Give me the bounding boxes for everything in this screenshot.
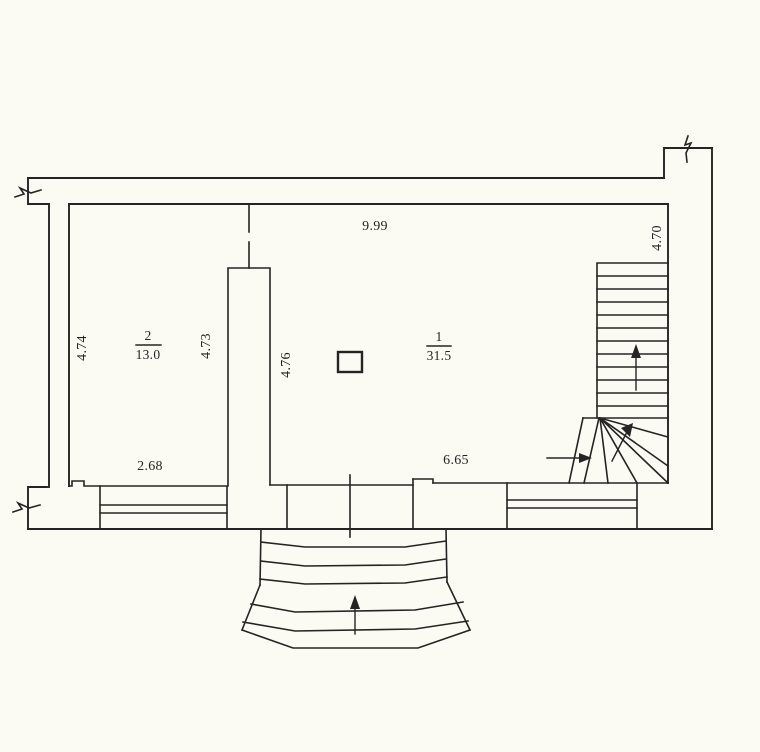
window-left — [100, 486, 227, 529]
stair-entry-arrow — [547, 453, 592, 463]
room-1-number: 1 — [435, 329, 442, 344]
window-right-frame — [507, 483, 637, 529]
dim-room1-left: 4.76 — [279, 352, 294, 378]
porch-side-left — [260, 529, 261, 585]
winder-left-boundary — [569, 418, 583, 483]
bottom-inner-left — [69, 481, 100, 486]
break-mark-bottom-left — [13, 503, 40, 512]
dim-left-height: 4.74 — [75, 335, 90, 361]
porch-steps — [242, 529, 470, 648]
window-right-glass-lines — [507, 500, 637, 508]
porch-bottom-edge — [242, 630, 470, 648]
dim-stair-side: 4.70 — [650, 225, 665, 251]
dim-bottom-left: 2.68 — [137, 459, 163, 474]
room-2-label: 2 13.0 — [136, 328, 161, 362]
door-right-pilaster — [413, 479, 433, 483]
window-left-frame — [100, 486, 227, 529]
porch-step-3 — [260, 577, 447, 584]
winder-stairs — [569, 418, 668, 483]
room-1-label: 1 31.5 — [427, 329, 452, 363]
dim-room2-right: 4.73 — [199, 333, 214, 359]
room-2-number: 2 — [144, 328, 151, 343]
dim-bottom-right: 6.65 — [443, 453, 469, 468]
exterior-walls — [28, 148, 712, 529]
room-1-area: 31.5 — [427, 348, 452, 363]
floor-plan-sheet: 9.99 4.70 4.74 4.73 4.76 2.68 6.65 2 13.… — [0, 0, 760, 752]
window-right — [507, 483, 637, 529]
winder-fan-lines — [600, 418, 668, 483]
stair-treads — [597, 276, 668, 406]
break-mark-top-right — [685, 136, 691, 162]
porch-step-1 — [261, 541, 446, 547]
staircase — [583, 263, 668, 418]
porch-up-arrow — [350, 595, 360, 634]
windows — [100, 483, 637, 529]
porch-side-right — [446, 529, 447, 582]
winder-first-tread — [584, 418, 599, 483]
dimension-labels: 9.99 4.70 4.74 4.73 4.76 2.68 6.65 — [75, 219, 665, 474]
column — [338, 352, 362, 372]
porch-step-2 — [261, 559, 446, 566]
window-left-glass-lines — [100, 505, 227, 513]
top-right-notch — [664, 148, 712, 178]
floor-plan-drawing: 9.99 4.70 4.74 4.73 4.76 2.68 6.65 2 13.… — [0, 0, 760, 752]
room-2-area: 13.0 — [136, 347, 161, 362]
wall-break-marks — [13, 136, 691, 512]
dim-top-width: 9.99 — [362, 219, 388, 234]
partition-wall — [228, 268, 270, 486]
